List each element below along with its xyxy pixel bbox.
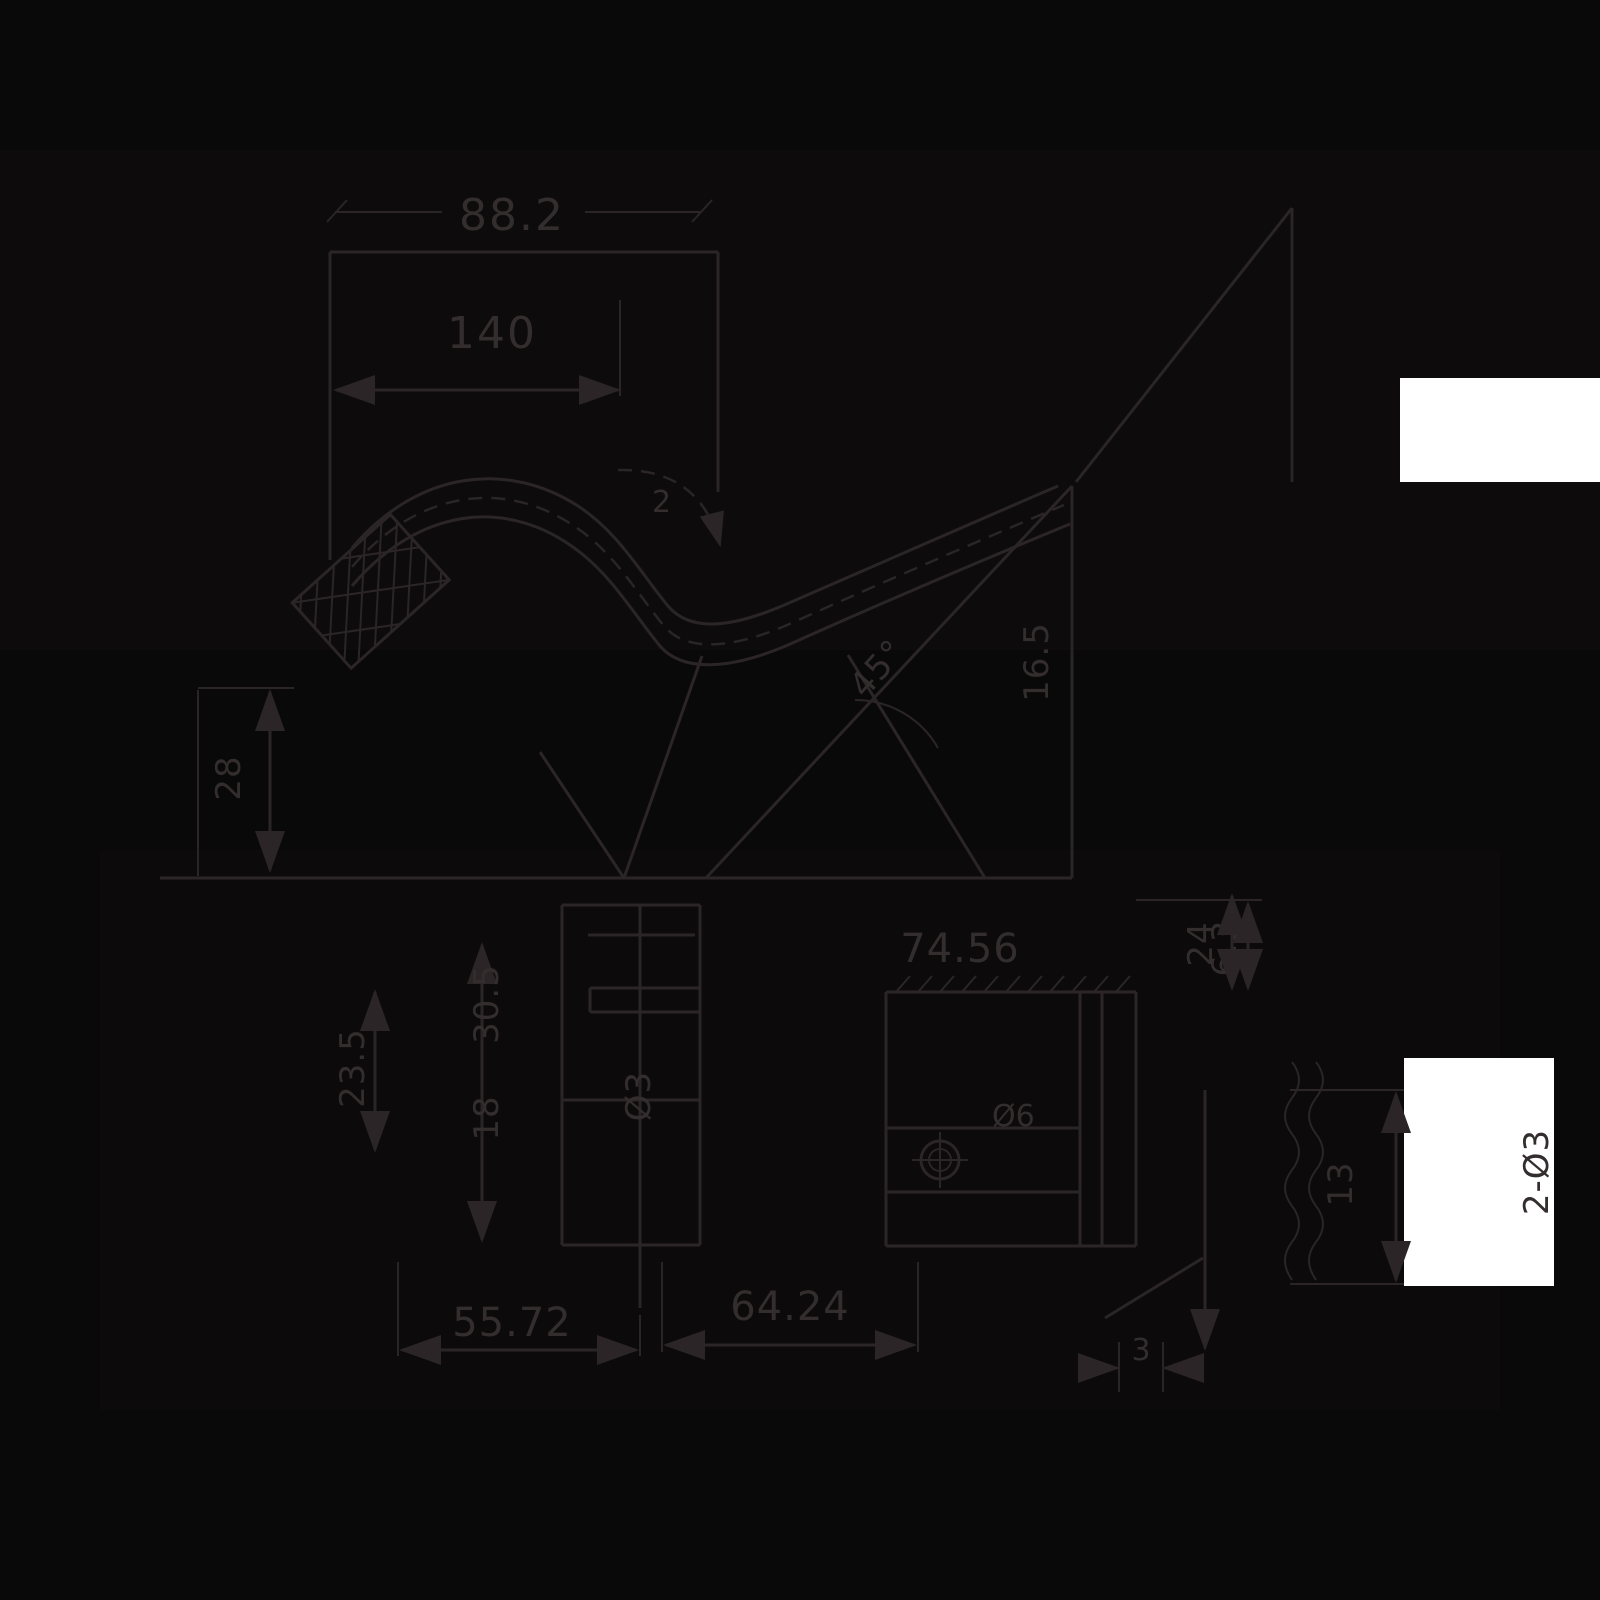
dim-bottom-mid-label: 64.24 [730,1284,850,1330]
dim-holes-pair-label: 2-Ø3 [1517,1129,1557,1215]
dim-left-height-label: 28 [209,755,249,800]
dim-step-b-label: 23.5 [333,1028,373,1108]
dimension-left-height: 28 [198,688,294,876]
dim-slope-height-label: 16.5 [1017,622,1057,702]
dim-hole-small-label: Ø3 [619,1071,659,1121]
technical-drawing: 88.2 140 2 [0,0,1600,1600]
dim-step-c-label: 18 [467,1095,507,1140]
dim-upper-width-label: 140 [447,308,537,359]
dim-plate-width-label: 74.56 [900,926,1020,972]
callout-bend-label: 2 [652,485,671,520]
dim-hole-large-label: Ø6 [992,1099,1035,1134]
white-patch-top-right [1400,378,1600,482]
dim-break-height-label: 13 [1321,1161,1361,1206]
dim-bottom-left-label: 55.72 [452,1300,572,1346]
dim-step-a-label: 30.5 [467,964,507,1044]
background-shade-top [0,150,1600,650]
drawing-canvas: 88.2 140 2 [0,0,1600,1600]
dim-slot-label: 3 [1131,1333,1150,1368]
dim-top-width-label: 88.2 [459,190,565,241]
dim-right-height-label: 24 [1181,921,1221,966]
